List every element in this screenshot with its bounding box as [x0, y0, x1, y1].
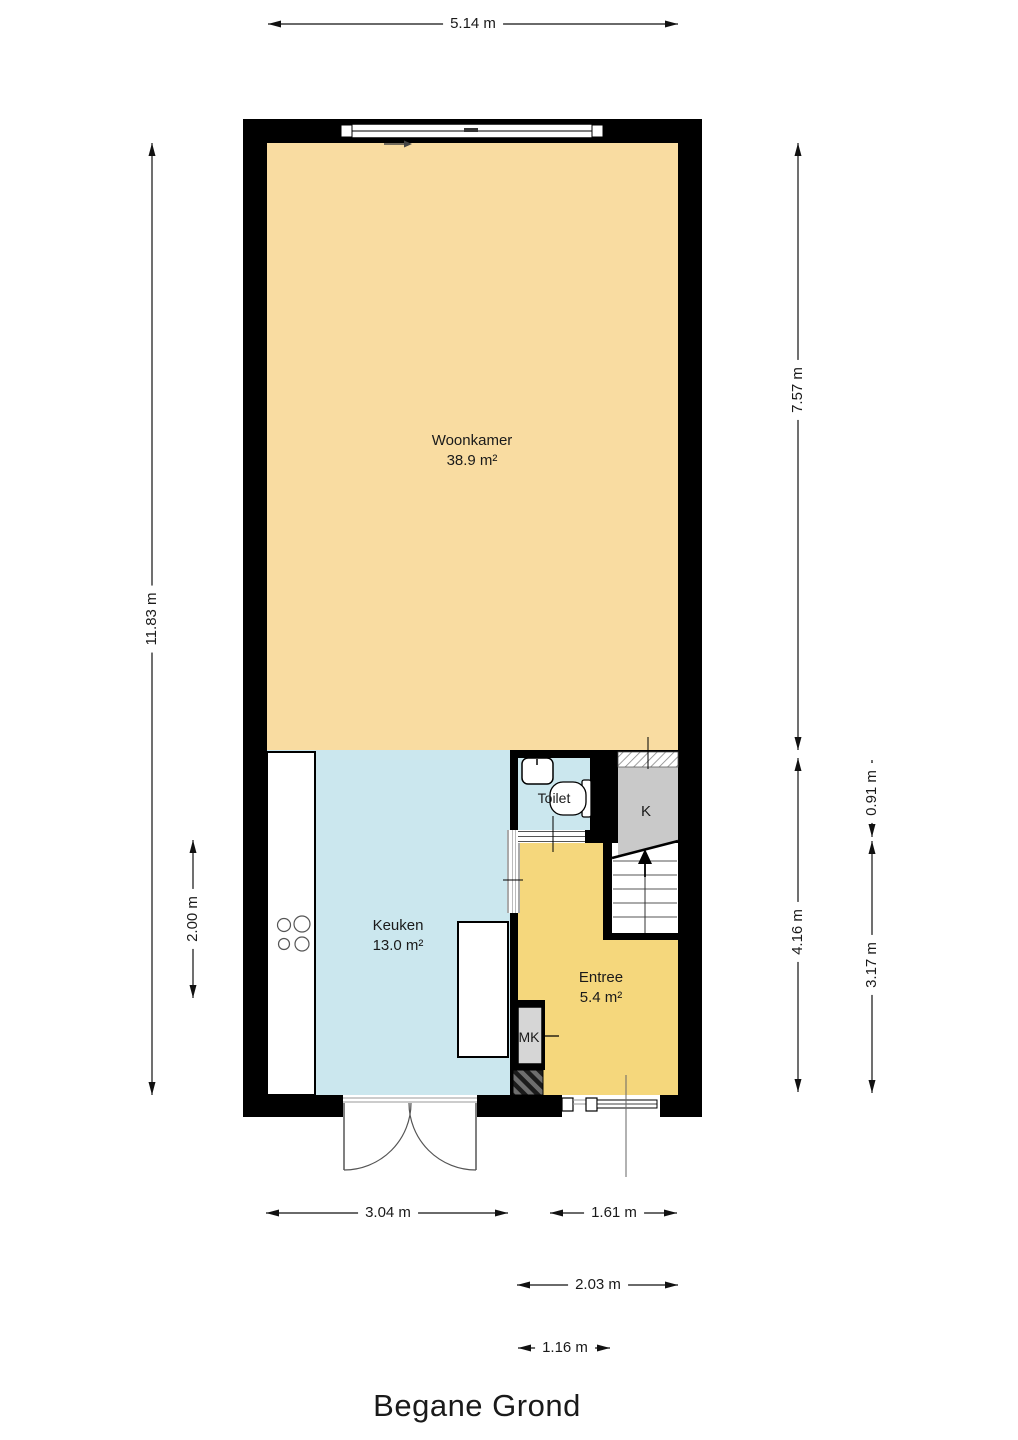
room-name-woonkamer: Woonkamer [432, 431, 513, 451]
room-label-entree: Entree 5.4 m² [579, 968, 623, 1008]
top-window-post-left [341, 125, 352, 137]
room-label-woonkamer: Woonkamer 38.9 m² [432, 431, 513, 471]
room-entree-floor-lower [603, 940, 678, 1095]
room-area-woonkamer: 38.9 m² [432, 451, 513, 471]
dim-bottom-entree-wide: 2.03 m [568, 1276, 628, 1294]
dim-right-hall: 3.17 m [863, 935, 881, 995]
dim-right-toilet: 0.91 m [863, 763, 881, 823]
room-area-keuken: 13.0 m² [373, 936, 424, 956]
floorplan-drawing [0, 0, 1018, 1440]
dim-top-width: 5.14 m [443, 15, 503, 33]
room-label-toilet: Toilet [538, 788, 571, 808]
kitchen-island [458, 922, 508, 1057]
top-window-post-right [592, 125, 603, 137]
dim-bottom-kitchen: 3.04 m [358, 1204, 418, 1222]
room-label-kast: K [641, 802, 651, 822]
entree-door-post-mid [586, 1098, 597, 1111]
floorplan-page: 5.14 m 11.83 m 2.00 m 7.57 m 0.91 m 4.16… [0, 0, 1018, 1440]
vent-hatch [513, 1070, 543, 1095]
plan-title: Begane Grond [373, 1388, 581, 1424]
room-area-entree: 5.4 m² [579, 988, 623, 1008]
top-window-handle [464, 128, 478, 132]
stairs-and-closet [612, 752, 678, 933]
dim-right-living: 7.57 m [789, 360, 807, 420]
room-label-meterkast: MK [519, 1027, 540, 1047]
dim-left-total: 11.83 m [143, 585, 161, 652]
room-name-keuken: Keuken [373, 916, 424, 936]
room-label-keuken: Keuken 13.0 m² [373, 916, 424, 956]
dim-bottom-entree: 1.61 m [584, 1204, 644, 1222]
entree-door-post-left [562, 1098, 573, 1111]
dim-left-kitchen: 2.00 m [184, 889, 202, 949]
dim-right-lower: 4.16 m [789, 902, 807, 962]
dim-bottom-door: 1.16 m [535, 1339, 595, 1357]
room-name-entree: Entree [579, 968, 623, 988]
